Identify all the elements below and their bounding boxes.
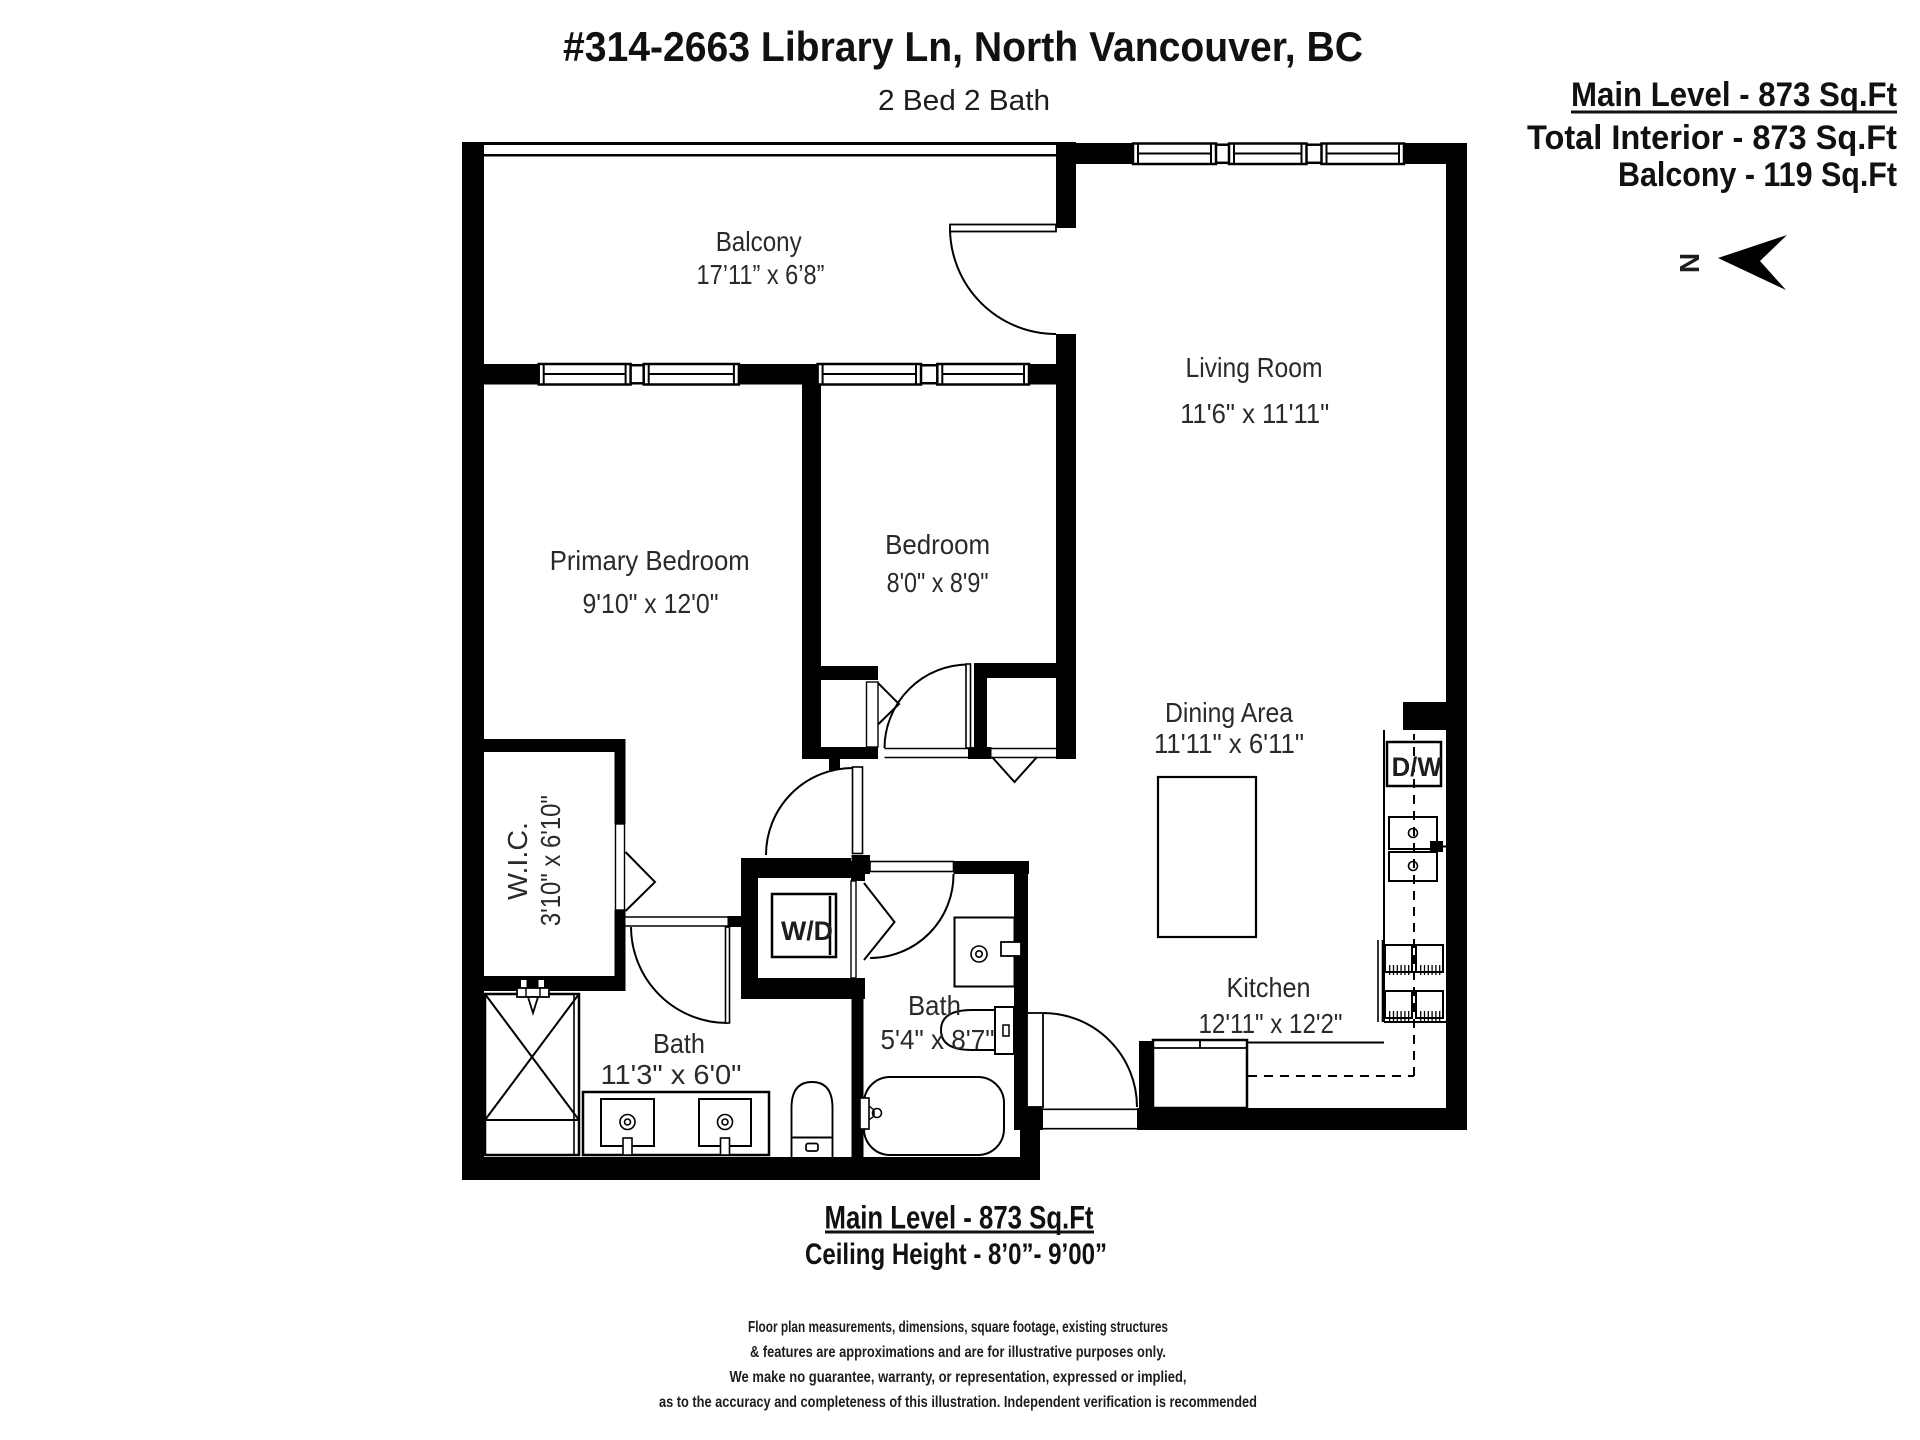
- svg-text:11'6" x 11'11": 11'6" x 11'11": [1180, 398, 1329, 429]
- svg-text:#314-2663 Library Ln, North Va: #314-2663 Library Ln, North Vancouver, B…: [563, 23, 1363, 70]
- svg-text:Bath: Bath: [653, 1028, 705, 1059]
- svg-text:11'11" x 6'11": 11'11" x 6'11": [1154, 728, 1304, 759]
- svg-text:9'10" x 12'0": 9'10" x 12'0": [583, 588, 719, 619]
- svg-text:W/D: W/D: [781, 916, 833, 946]
- svg-text:N: N: [1674, 253, 1705, 273]
- svg-text:We make no guarantee, warranty: We make no guarantee, warranty, or repre…: [730, 1369, 1187, 1386]
- svg-text:11'3" x 6'0": 11'3" x 6'0": [601, 1059, 742, 1090]
- svg-text:Main Level - 873 Sq.Ft: Main Level - 873 Sq.Ft: [825, 1200, 1094, 1236]
- svg-text:as to the accuracy and complet: as to the accuracy and completeness of t…: [659, 1394, 1257, 1411]
- svg-text:Bedroom: Bedroom: [885, 529, 990, 560]
- svg-text:Bath: Bath: [908, 990, 961, 1021]
- svg-text:Balcony: Balcony: [716, 226, 802, 257]
- svg-text:Ceiling Height - 8’0”- 9’00”: Ceiling Height - 8’0”- 9’00”: [805, 1238, 1107, 1271]
- svg-text:W.I.C.: W.I.C.: [502, 822, 533, 900]
- svg-text:8'0" x 8'9": 8'0" x 8'9": [887, 567, 989, 598]
- svg-text:2 Bed 2 Bath: 2 Bed 2 Bath: [878, 85, 1050, 117]
- svg-text:Kitchen: Kitchen: [1227, 972, 1311, 1003]
- svg-text:D/W: D/W: [1392, 752, 1442, 782]
- svg-text:& features are approximations: & features are approximations and are fo…: [750, 1344, 1166, 1361]
- svg-text:Total Interior - 873 Sq.Ft: Total Interior - 873 Sq.Ft: [1527, 119, 1897, 157]
- svg-text:Main Level - 873 Sq.Ft: Main Level - 873 Sq.Ft: [1571, 76, 1897, 114]
- svg-text:Balcony - 119 Sq.Ft: Balcony - 119 Sq.Ft: [1618, 156, 1897, 194]
- svg-text:Dining Area: Dining Area: [1165, 697, 1294, 728]
- svg-text:Living Room: Living Room: [1186, 352, 1323, 383]
- svg-text:Floor plan measurements, dimen: Floor plan measurements, dimensions, squ…: [748, 1319, 1168, 1336]
- svg-text:17’11” x 6’8”: 17’11” x 6’8”: [697, 259, 825, 290]
- svg-text:3'10" x 6'10": 3'10" x 6'10": [535, 795, 566, 926]
- svg-text:Primary Bedroom: Primary Bedroom: [550, 545, 750, 576]
- svg-text:5'4" x 8'7": 5'4" x 8'7": [881, 1024, 995, 1055]
- svg-text:12'11" x 12'2": 12'11" x 12'2": [1199, 1008, 1343, 1039]
